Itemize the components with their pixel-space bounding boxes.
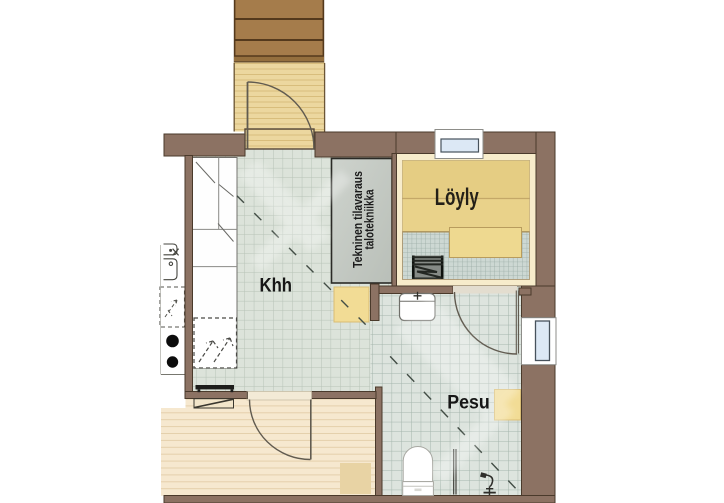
svg-text:Khh: Khh [260,275,293,297]
svg-text:Löyly: Löyly [435,184,479,211]
svg-text:Pesu: Pesu [447,391,490,413]
svg-text:talotekniikka: talotekniikka [362,189,377,250]
